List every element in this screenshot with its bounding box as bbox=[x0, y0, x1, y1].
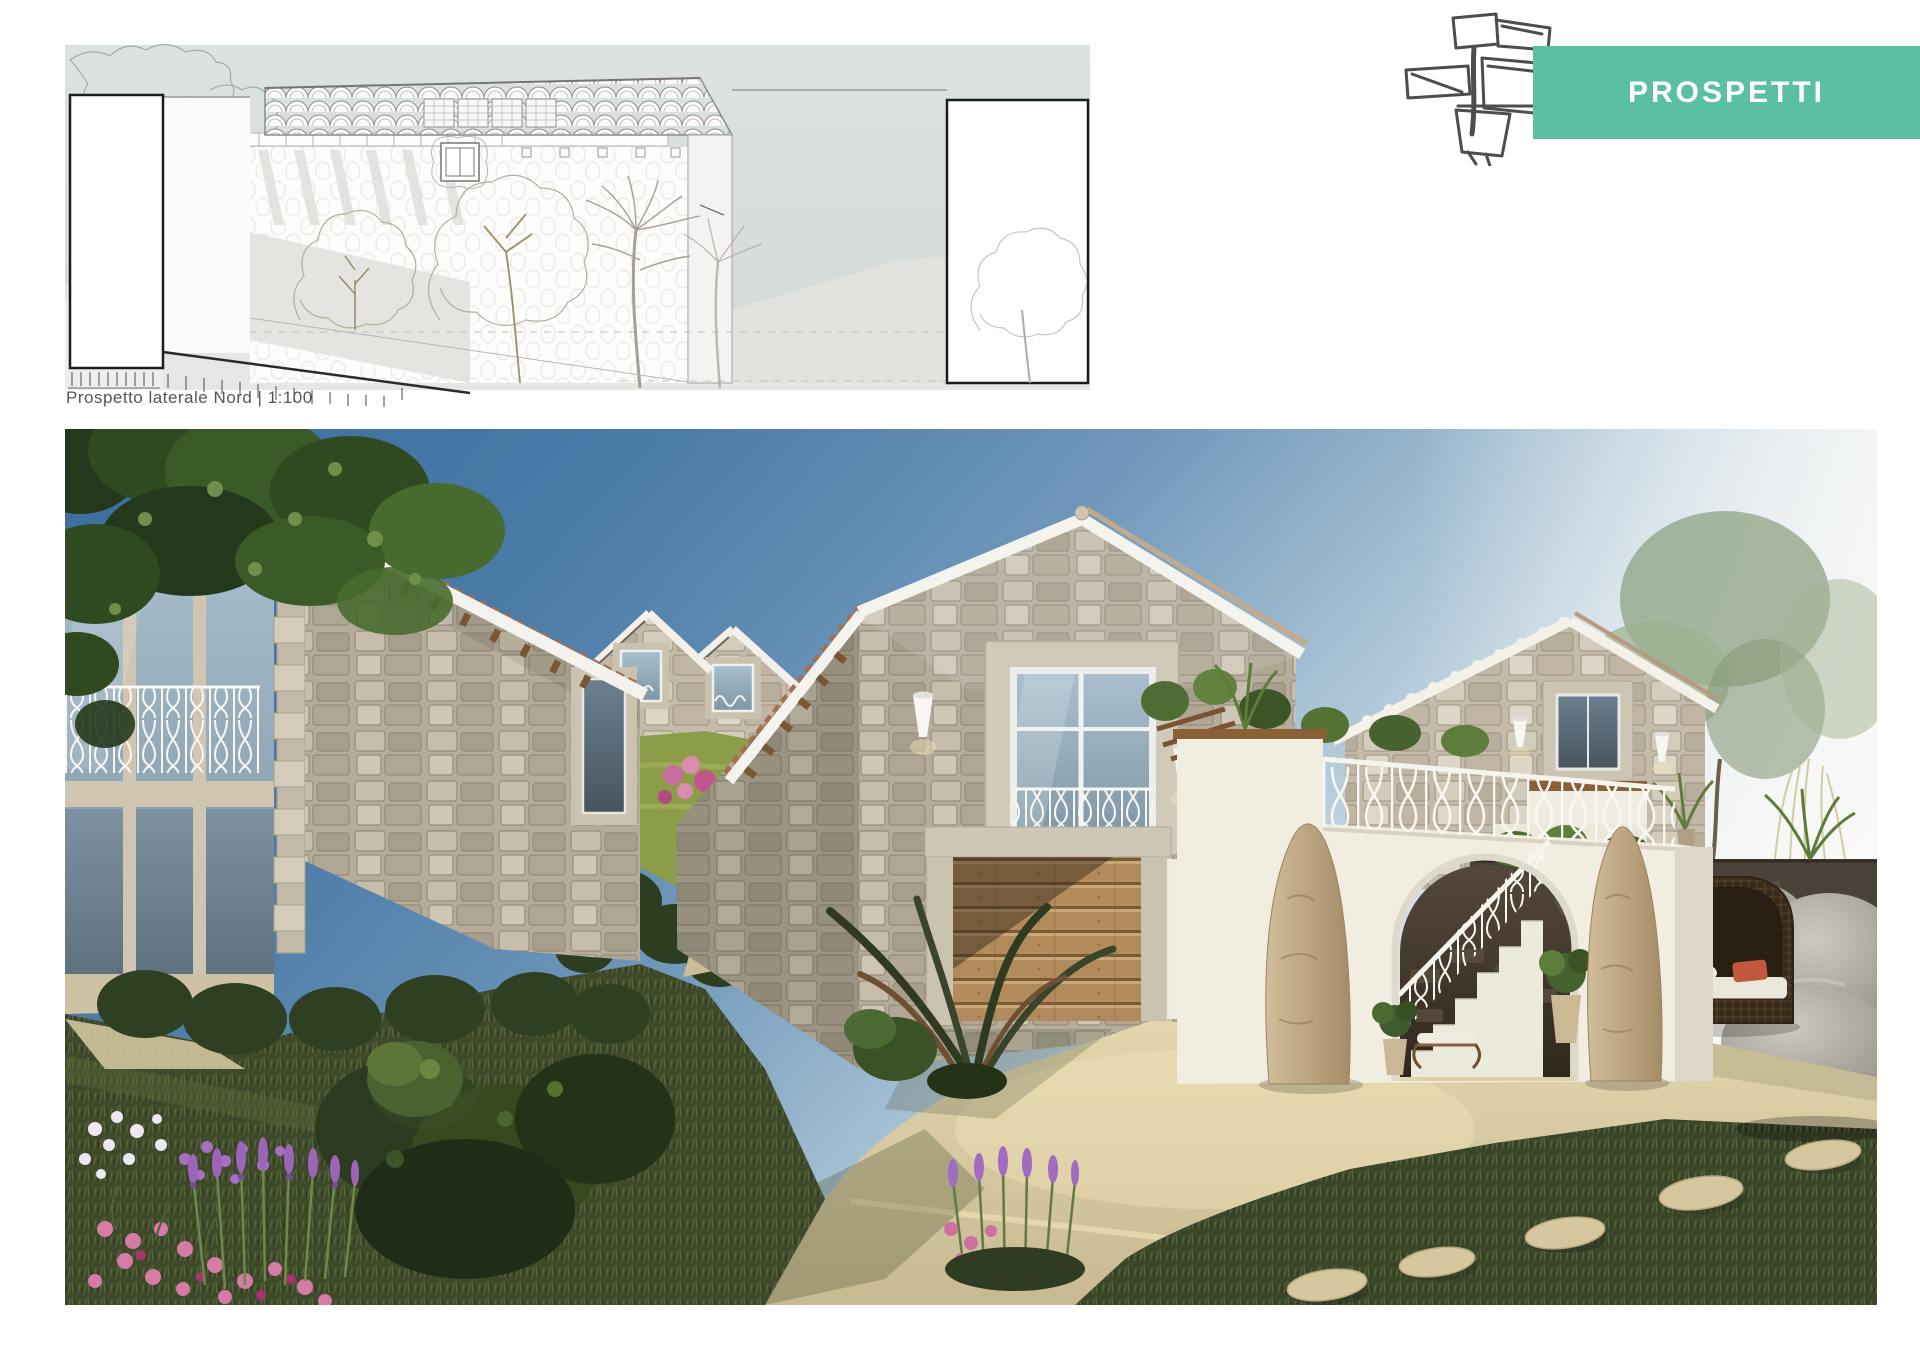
elevation-caption: Prospetto laterale Nord | 1:100 bbox=[66, 388, 313, 408]
elevation-canvas bbox=[65, 44, 1090, 407]
small-shrub bbox=[367, 1041, 463, 1117]
garage bbox=[925, 827, 1179, 1025]
wood-cap bbox=[1173, 729, 1327, 739]
right-villa-window bbox=[1543, 681, 1633, 781]
center-villa-window bbox=[985, 641, 1179, 855]
elevation-building bbox=[232, 78, 732, 383]
orange-pillow bbox=[1732, 959, 1768, 982]
banner-label: PROSPETTI bbox=[1628, 76, 1825, 110]
section-cut-right bbox=[947, 100, 1088, 383]
render-image bbox=[65, 429, 1877, 1305]
section-cut-left bbox=[70, 95, 163, 368]
section-banner: PROSPETTI bbox=[1533, 46, 1920, 139]
elevation-drawing bbox=[0, 0, 1200, 420]
